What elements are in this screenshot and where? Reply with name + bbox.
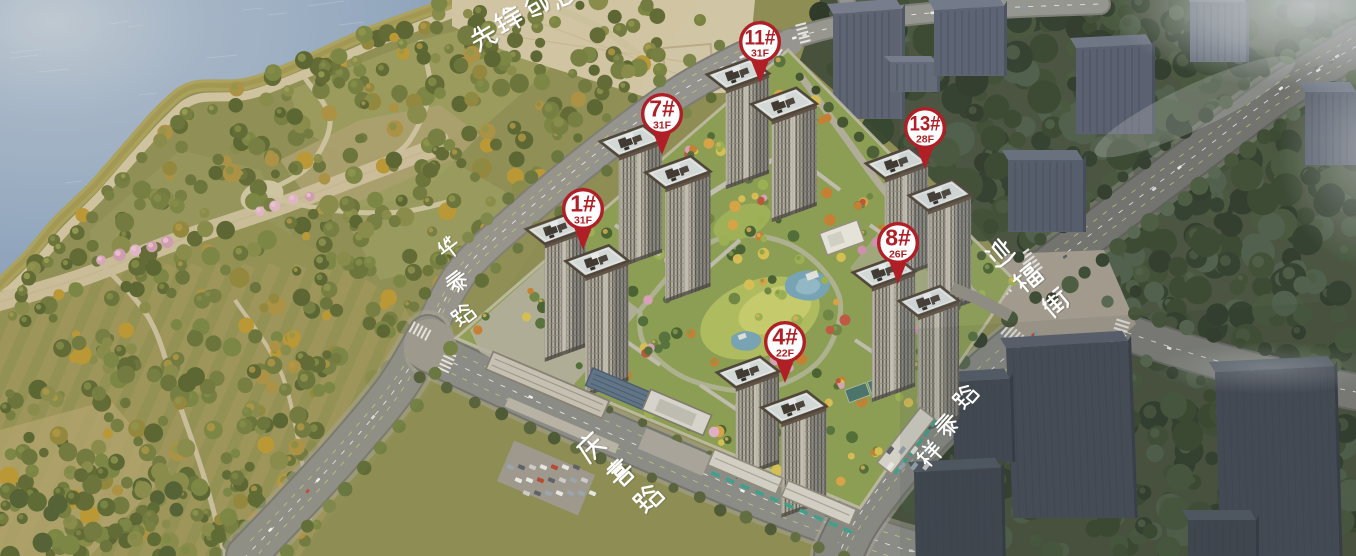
- svg-text:31F: 31F: [574, 215, 593, 227]
- svg-text:4#: 4#: [772, 324, 798, 350]
- svg-text:31F: 31F: [653, 120, 672, 132]
- svg-text:11#: 11#: [745, 27, 776, 50]
- svg-text:1#: 1#: [570, 191, 596, 217]
- svg-text:13#: 13#: [910, 113, 941, 136]
- svg-text:26F: 26F: [889, 249, 908, 261]
- svg-text:31F: 31F: [751, 48, 770, 60]
- svg-text:28F: 28F: [916, 134, 935, 146]
- svg-text:22F: 22F: [776, 348, 795, 360]
- svg-text:7#: 7#: [649, 96, 675, 122]
- svg-text:8#: 8#: [885, 225, 911, 251]
